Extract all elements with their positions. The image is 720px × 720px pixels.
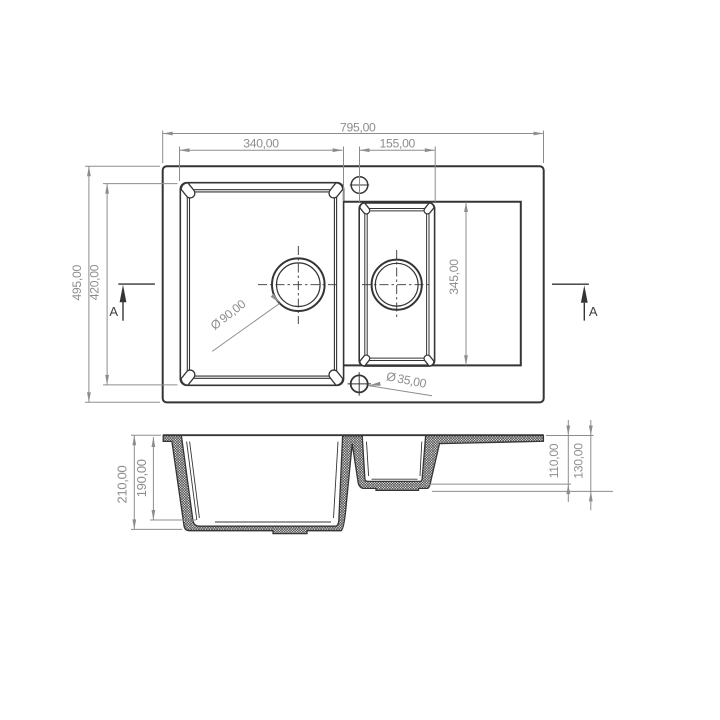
svg-text:A: A (109, 304, 118, 319)
svg-text:795,00: 795,00 (340, 121, 376, 135)
svg-text:Ø 90,00: Ø 90,00 (208, 297, 249, 333)
svg-text:155,00: 155,00 (380, 136, 416, 150)
svg-text:110,00: 110,00 (547, 443, 561, 478)
svg-text:Ø 35,00: Ø 35,00 (385, 369, 428, 391)
svg-text:130,00: 130,00 (572, 443, 586, 479)
svg-text:495,00: 495,00 (70, 265, 84, 301)
svg-text:210,00: 210,00 (115, 465, 130, 503)
svg-text:420,00: 420,00 (88, 264, 102, 300)
svg-text:345,00: 345,00 (447, 259, 461, 295)
svg-text:340,00: 340,00 (243, 136, 279, 150)
svg-text:190,00: 190,00 (134, 459, 149, 497)
svg-text:A: A (589, 304, 598, 319)
